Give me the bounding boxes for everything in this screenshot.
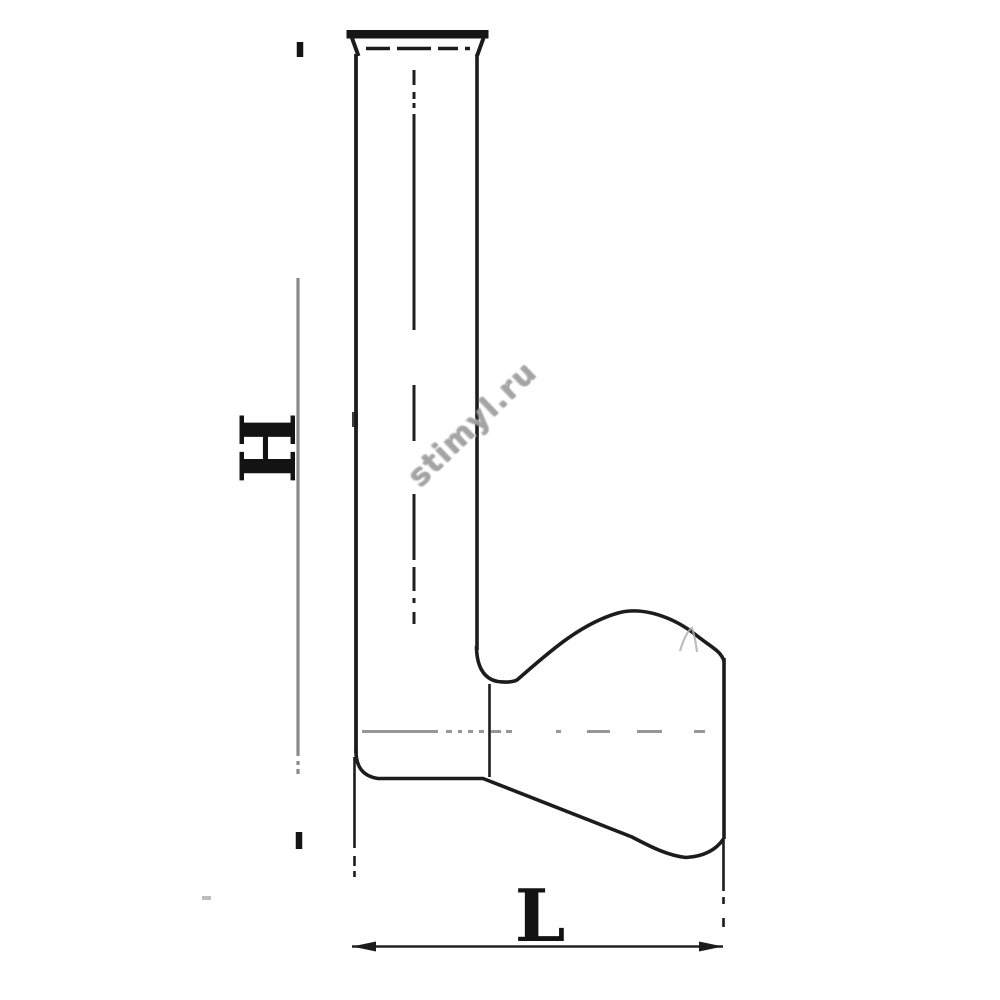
vessel-bottom-outline [356, 751, 724, 858]
length-dimension-arrow-right [699, 942, 723, 952]
length-dimension-arrow-left [352, 942, 376, 952]
rim-top-bar [347, 30, 489, 39]
bulb-dome-outline [477, 611, 725, 682]
rim-flare-left [352, 38, 359, 56]
glassware-line-drawing [0, 0, 1000, 1000]
tube-wall-mark [352, 412, 358, 427]
diagram-canvas: H L stimyl.ru [0, 0, 1000, 1000]
height-dimension-label: H [206, 386, 330, 510]
length-dimension-label: L [480, 860, 600, 970]
rim-flare-right [477, 38, 484, 56]
stray-mark [202, 896, 211, 900]
